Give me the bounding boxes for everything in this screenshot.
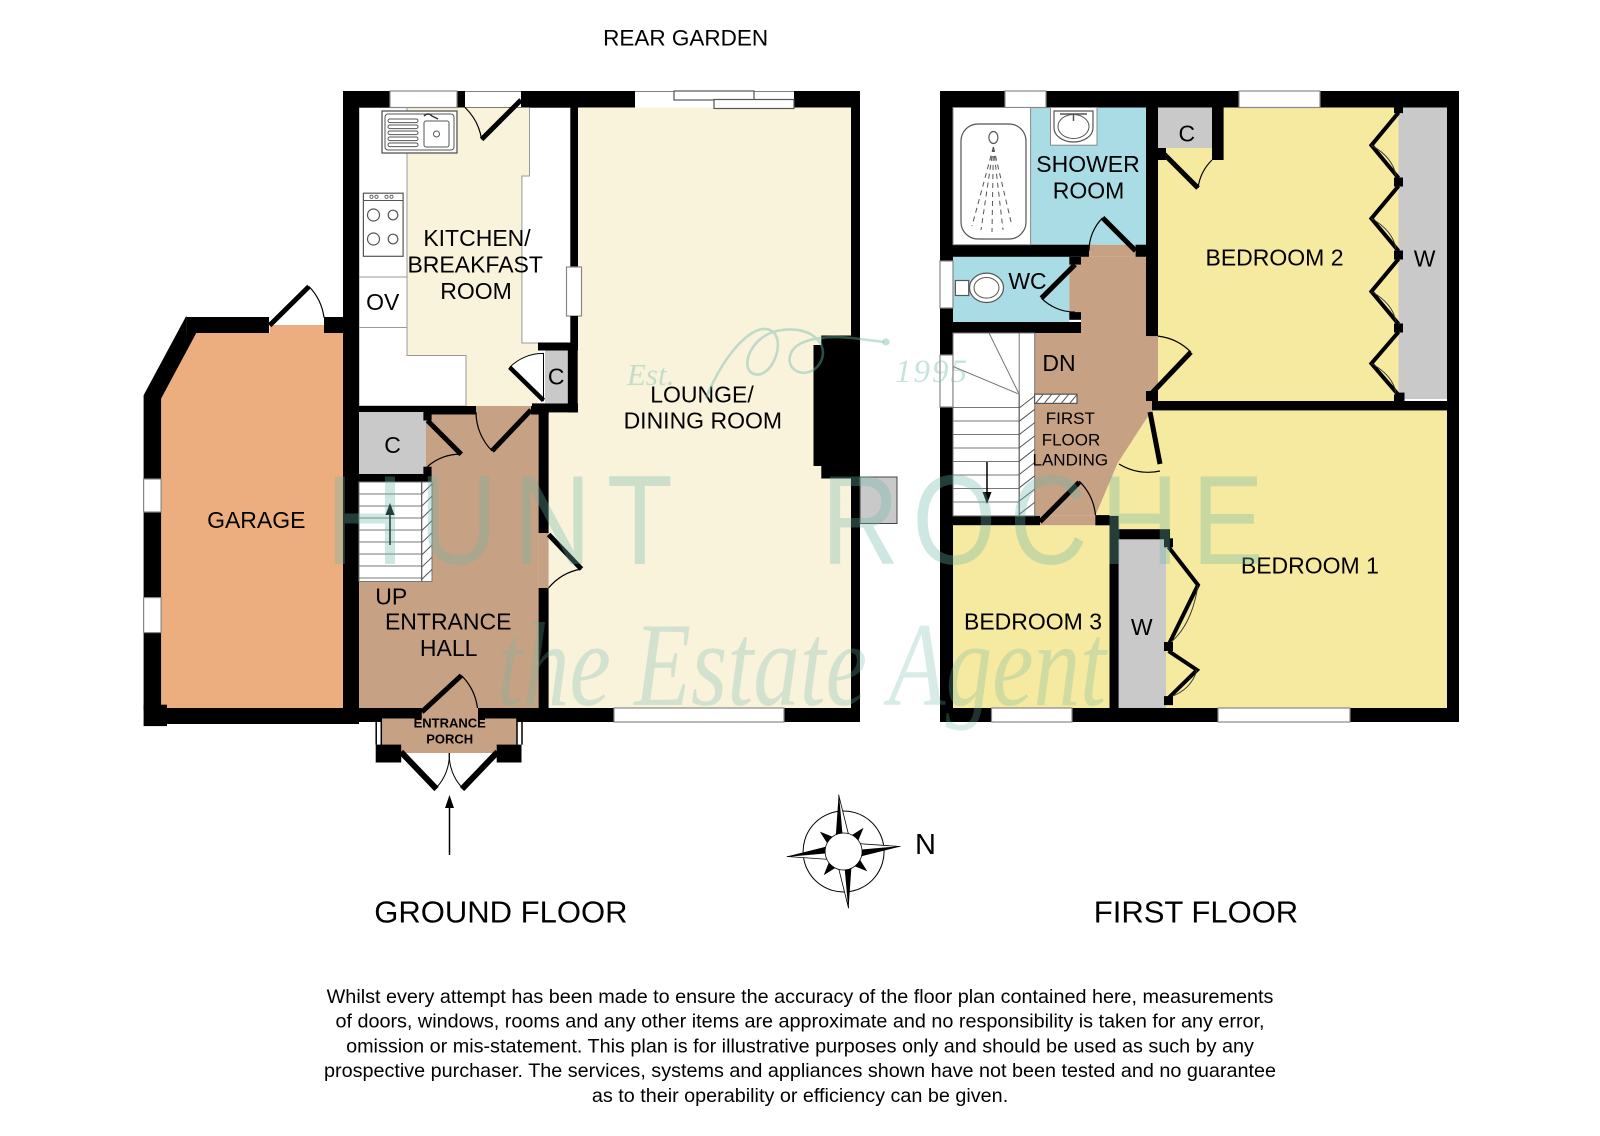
svg-text:GARAGE: GARAGE bbox=[207, 507, 305, 533]
svg-text:SHOWER: SHOWER bbox=[1036, 151, 1140, 177]
svg-text:HALL: HALL bbox=[420, 635, 478, 661]
svg-text:ROCHE: ROCHE bbox=[821, 449, 1277, 591]
svg-text:DINING ROOM: DINING ROOM bbox=[624, 408, 782, 434]
svg-text:omission or mis-statement. Thi: omission or mis-statement. This plan is … bbox=[346, 1035, 1254, 1057]
svg-text:ENTRANCE: ENTRANCE bbox=[385, 609, 512, 635]
svg-text:OV: OV bbox=[366, 289, 400, 315]
svg-text:FIRST: FIRST bbox=[1046, 409, 1095, 428]
svg-text:C: C bbox=[548, 364, 565, 390]
svg-text:WC: WC bbox=[1008, 268, 1046, 294]
svg-text:W: W bbox=[1131, 614, 1153, 640]
svg-text:W: W bbox=[1414, 246, 1436, 272]
svg-text:BREAKFAST: BREAKFAST bbox=[407, 252, 542, 278]
svg-text:PORCH: PORCH bbox=[426, 732, 473, 747]
svg-text:N: N bbox=[915, 829, 936, 861]
svg-text:the Estate Agent: the Estate Agent bbox=[497, 598, 1108, 731]
svg-text:prospective purchaser. The ser: prospective purchaser. The services, sys… bbox=[324, 1060, 1276, 1082]
svg-text:ROOM: ROOM bbox=[1053, 177, 1125, 203]
svg-text:REAR GARDEN: REAR GARDEN bbox=[603, 26, 768, 51]
svg-text:HUNT: HUNT bbox=[326, 449, 689, 591]
svg-text:GROUND FLOOR: GROUND FLOOR bbox=[374, 895, 627, 930]
svg-text:Whilst every attempt has been: Whilst every attempt has been made to en… bbox=[327, 986, 1274, 1008]
svg-text:C: C bbox=[1178, 121, 1195, 147]
svg-text:of doors, windows, rooms and a: of doors, windows, rooms and any other i… bbox=[335, 1011, 1264, 1033]
svg-text:DN: DN bbox=[1042, 350, 1075, 376]
svg-text:FLOOR: FLOOR bbox=[1042, 431, 1101, 450]
svg-text:as to their operability or eff: as to their operability or efficiency ca… bbox=[592, 1085, 1008, 1107]
svg-text:BEDROOM 2: BEDROOM 2 bbox=[1205, 245, 1343, 271]
svg-text:ENTRANCE: ENTRANCE bbox=[414, 716, 487, 731]
svg-text:KITCHEN/: KITCHEN/ bbox=[423, 225, 531, 251]
svg-text:ROOM: ROOM bbox=[440, 278, 512, 304]
svg-text:Est.: Est. bbox=[626, 357, 674, 392]
svg-text:FIRST FLOOR: FIRST FLOOR bbox=[1094, 895, 1298, 930]
svg-text:1995: 1995 bbox=[895, 354, 967, 390]
